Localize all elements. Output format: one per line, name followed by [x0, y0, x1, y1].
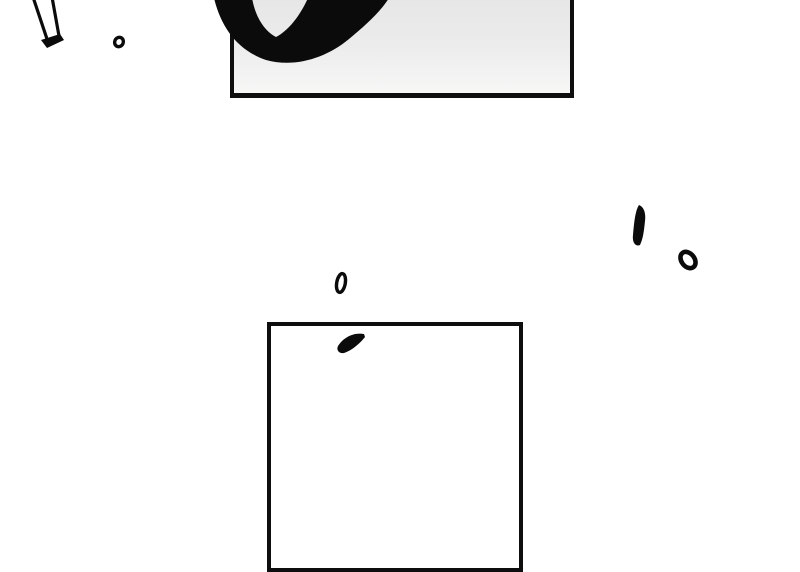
speed-line-icon [33, 0, 64, 48]
speed-line-left-edge [33, 0, 48, 42]
small-ring-mark-1-icon [113, 36, 125, 48]
speed-line-right-edge [52, 0, 59, 36]
exclamation-dash-icon [633, 205, 645, 246]
small-ring-mark-2-icon [677, 249, 698, 271]
comic-page-background [0, 0, 800, 555]
panel-bottom [267, 322, 523, 572]
small-oval-mark-icon [335, 273, 347, 293]
panel-top [230, 0, 574, 98]
speed-line-cap [41, 34, 64, 48]
